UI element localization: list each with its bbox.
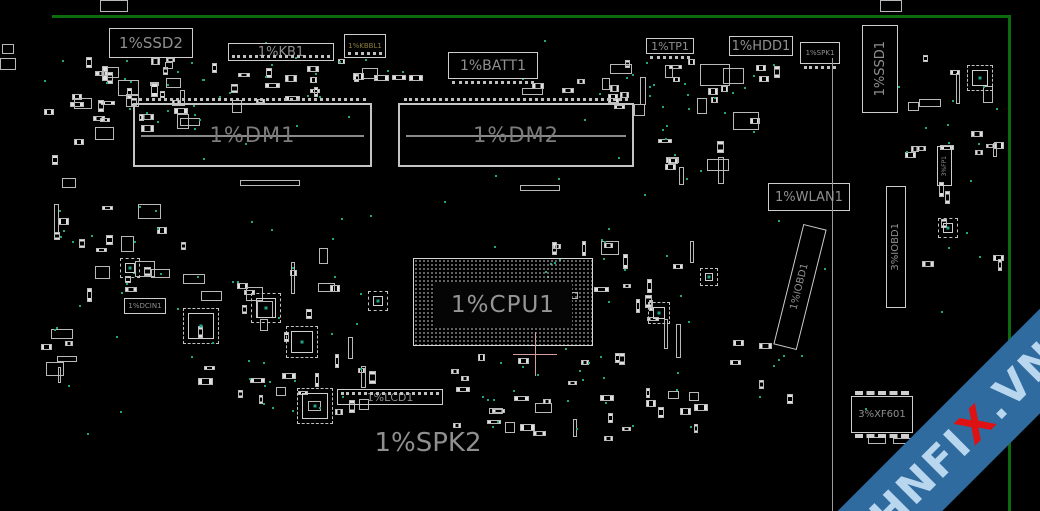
test-point-dot	[537, 374, 539, 376]
part-resistor	[314, 87, 318, 98]
part-resistor	[151, 58, 160, 65]
part-resistor	[461, 376, 469, 381]
part-resistor	[242, 305, 248, 314]
test-point-dot	[124, 78, 126, 80]
test-point-dot	[686, 178, 688, 180]
component-label: 1%DCIN1	[128, 303, 161, 310]
test-point-dot	[801, 355, 803, 357]
test-point-dot	[603, 377, 605, 379]
part-resistor	[335, 409, 342, 415]
test-point-dot	[272, 407, 274, 409]
part-resistor	[520, 424, 535, 431]
part-resistor	[636, 299, 640, 313]
pin-ticks	[855, 391, 909, 395]
part-box	[2, 44, 14, 54]
part-box	[95, 127, 113, 140]
part-resistor	[306, 309, 312, 319]
test-point-dot	[941, 311, 943, 313]
test-point-dot	[783, 355, 785, 357]
part-box	[520, 185, 560, 191]
part-resistor	[733, 340, 743, 346]
test-point-dot	[649, 95, 651, 97]
part-resistor	[310, 77, 317, 82]
part-resistor	[409, 75, 424, 81]
test-point-dot	[264, 385, 266, 387]
part-resistor	[41, 344, 52, 350]
test-point-dot	[665, 138, 667, 140]
component-label: 3%XF601	[858, 410, 906, 420]
part-box	[602, 78, 610, 90]
test-point-dot	[292, 410, 294, 412]
component-label: 1%KBBL1	[348, 43, 382, 50]
test-point-dot	[579, 370, 581, 372]
component-ssd1[interactable]: 1%SSD1	[862, 25, 898, 113]
part-box	[668, 391, 679, 399]
component-cpu[interactable]: 1%CPU1	[413, 258, 593, 346]
part-box	[362, 68, 377, 79]
test-point-dot	[271, 229, 273, 231]
component-tp1[interactable]: 1%TP1	[646, 38, 694, 54]
part-resistor	[290, 270, 297, 276]
pin-row	[452, 81, 534, 84]
test-point-dot	[759, 396, 761, 398]
cursor-crosshair-horizontal	[513, 354, 557, 355]
component-dcin1[interactable]: 1%DCIN1	[124, 298, 166, 314]
part-resistor	[562, 88, 574, 93]
part-resistor	[923, 55, 928, 62]
test-point-dot	[608, 301, 610, 303]
test-point-dot	[970, 180, 972, 182]
part-resistor	[950, 70, 960, 75]
part-resistor	[54, 232, 60, 239]
part-resistor	[694, 404, 709, 411]
test-point-dot	[63, 230, 65, 232]
test-point-dot	[649, 86, 651, 88]
part-resistor	[74, 139, 84, 145]
test-point-dot	[662, 129, 664, 131]
test-point-dot	[608, 228, 610, 230]
part-resistor	[986, 144, 995, 148]
part-resistor	[198, 378, 213, 384]
test-point-dot	[44, 80, 46, 82]
test-point-dot	[292, 267, 294, 269]
part-resistor	[392, 75, 406, 80]
test-point-dot	[56, 327, 58, 329]
test-point-dot	[753, 75, 755, 77]
part-resistor	[533, 431, 546, 436]
part-resistor	[608, 413, 613, 424]
part-box	[74, 98, 92, 108]
part-box	[919, 99, 941, 107]
test-point-dot	[567, 400, 569, 402]
chip	[297, 388, 333, 424]
test-point-dot	[948, 142, 950, 144]
pin-row	[650, 56, 690, 59]
part-bar	[956, 73, 960, 103]
chip	[938, 218, 958, 238]
test-point-dot	[263, 403, 265, 405]
test-point-dot	[624, 269, 626, 271]
part-resistor	[478, 354, 485, 361]
part-box	[868, 437, 886, 444]
part-resistor	[604, 436, 613, 441]
component-label: 1%SSD1	[874, 41, 887, 96]
part-box	[505, 422, 515, 433]
test-point-dot	[646, 62, 648, 64]
part-resistor	[212, 63, 218, 73]
part-resistor	[307, 66, 320, 72]
part-resistor	[282, 373, 296, 379]
test-point-dot	[676, 389, 678, 391]
test-point-dot	[139, 206, 141, 208]
test-point-dot	[191, 356, 193, 358]
test-point-dot	[544, 40, 546, 42]
part-resistor	[658, 407, 664, 418]
part-box	[201, 291, 223, 301]
part-box	[95, 266, 110, 280]
component-xf601[interactable]: 3%XF601	[851, 396, 913, 433]
part-resistor	[647, 279, 652, 293]
part-resistor	[151, 83, 158, 98]
component-batt1[interactable]: 1%BATT1	[448, 52, 538, 79]
chip	[286, 326, 318, 358]
test-point-dot	[744, 87, 746, 89]
test-point-dot	[700, 170, 702, 172]
test-point-dot	[666, 125, 668, 127]
part-resistor	[917, 146, 926, 151]
test-point-dot	[134, 241, 136, 243]
component-wlan1[interactable]: 1%WLAN1	[768, 183, 850, 211]
test-point-dot	[495, 175, 497, 177]
test-point-dot	[360, 293, 362, 295]
part-resistor	[285, 75, 296, 81]
pin-row	[348, 52, 382, 55]
part-resistor	[971, 131, 984, 138]
test-point-dot	[688, 321, 690, 323]
test-point-dot	[773, 365, 775, 367]
test-point-dot	[662, 106, 664, 108]
test-point-dot	[356, 323, 358, 325]
part-resistor	[265, 83, 280, 88]
part-resistor	[759, 76, 769, 82]
test-point-dot	[979, 256, 981, 258]
part-resistor	[231, 84, 237, 93]
part-box	[908, 102, 919, 111]
part-bar	[718, 157, 723, 184]
part-resistor	[44, 109, 54, 115]
test-point-dot	[237, 281, 239, 283]
test-point-dot	[229, 92, 231, 94]
component-label: 1%TP1	[651, 41, 689, 52]
part-resistor	[625, 60, 630, 68]
part-resistor	[646, 388, 651, 397]
test-point-dot	[898, 86, 900, 88]
boardview-canvas[interactable]: 1%SSD21%KB11%KBBL11%BATT11%TP11%HDD11%SP…	[0, 0, 1040, 511]
pin-ticks	[855, 434, 909, 438]
component-ssd2[interactable]: 1%SSD2	[109, 28, 193, 58]
chip	[700, 268, 718, 286]
component-label: 1%DM1	[210, 125, 296, 146]
test-point-dot	[160, 273, 162, 275]
test-point-dot	[978, 143, 980, 145]
chip	[648, 302, 670, 324]
part-resistor	[204, 366, 215, 370]
test-point-dot	[157, 228, 159, 230]
component-label: 1%HDD1	[732, 40, 791, 53]
part-resistor	[582, 241, 587, 255]
part-box	[489, 408, 503, 414]
test-point-dot	[714, 97, 716, 99]
test-point-dot	[248, 360, 250, 362]
part-bar	[348, 337, 353, 359]
part-bar	[640, 77, 646, 105]
test-point-dot	[680, 295, 682, 297]
test-point-dot	[604, 241, 606, 243]
test-point-dot	[773, 64, 775, 66]
test-point-dot	[677, 372, 679, 374]
test-point-dot	[265, 76, 267, 78]
component-label: 1%SPK2	[374, 430, 481, 456]
test-point-dot	[644, 194, 646, 196]
part-resistor	[65, 341, 72, 346]
part-resistor	[787, 394, 793, 405]
test-point-dot	[493, 399, 495, 401]
pin-row	[341, 392, 439, 395]
test-point-dot	[576, 428, 578, 430]
part-resistor	[756, 65, 766, 70]
part-resistor	[315, 373, 319, 387]
test-point-dot	[191, 62, 193, 64]
test-point-dot	[387, 70, 389, 72]
part-resistor	[238, 73, 250, 77]
component-label: 3%FP1	[942, 156, 948, 176]
component-label: 1%SSD2	[119, 36, 183, 51]
part-box	[276, 387, 286, 396]
part-resistor	[610, 85, 619, 91]
part-resistor	[922, 261, 934, 267]
part-resistor	[717, 141, 724, 152]
part-resistor	[622, 427, 630, 431]
component-fp1[interactable]: 3%FP1	[937, 146, 952, 186]
component-dm2[interactable]: 1%DM2	[398, 103, 634, 167]
chip	[368, 291, 388, 311]
component-dm1[interactable]: 1%DM1	[133, 103, 372, 167]
part-resistor	[552, 242, 557, 256]
part-resistor	[665, 164, 677, 170]
part-resistor	[58, 218, 68, 224]
part-resistor	[335, 354, 340, 368]
test-point-dot	[494, 246, 496, 248]
part-box	[240, 180, 300, 186]
test-point-dot	[632, 74, 634, 76]
part-resistor	[514, 396, 529, 401]
part-resistor	[86, 57, 92, 68]
part-box	[689, 392, 699, 401]
test-point-dot	[278, 317, 280, 319]
test-point-dot	[177, 71, 179, 73]
test-point-dot	[778, 220, 780, 222]
test-point-dot	[212, 342, 214, 344]
part-box	[100, 0, 128, 12]
part-resistor	[721, 86, 729, 92]
test-point-dot	[632, 425, 634, 427]
test-point-dot	[251, 221, 253, 223]
test-point-dot	[500, 362, 502, 364]
test-point-dot	[360, 368, 362, 370]
component-hdd1[interactable]: 1%HDD1	[729, 36, 793, 56]
component-kb1[interactable]: 1%KB1	[228, 43, 334, 61]
test-point-dot	[294, 380, 296, 382]
test-point-dot	[121, 292, 123, 294]
part-resistor	[673, 264, 683, 269]
part-resistor	[759, 380, 764, 389]
test-point-dot	[925, 127, 927, 129]
component-iobd1[interactable]: 1%IOBD1	[773, 224, 826, 350]
test-point-dot	[603, 258, 605, 260]
test-point-dot	[203, 79, 205, 81]
component-kbbl1[interactable]: 1%KBBL1	[344, 34, 386, 58]
test-point-dot	[778, 359, 780, 361]
slot-pin-strip	[139, 98, 366, 101]
test-point-dot	[947, 124, 949, 126]
part-box	[634, 104, 645, 117]
test-point-dot	[59, 210, 61, 212]
part-bar	[690, 241, 694, 263]
part-resistor	[680, 408, 692, 415]
test-point-dot	[522, 366, 524, 368]
test-point-dot	[334, 276, 336, 278]
test-point-dot	[753, 131, 755, 133]
test-point-dot	[167, 84, 169, 86]
part-box	[183, 274, 205, 284]
part-box	[700, 64, 730, 86]
test-point-dot	[492, 426, 494, 428]
part-resistor	[125, 287, 137, 292]
test-point-dot	[690, 426, 692, 428]
part-box	[62, 178, 76, 188]
test-point-dot	[197, 276, 199, 278]
part-resistor	[330, 285, 339, 292]
part-resistor	[518, 358, 529, 363]
test-point-dot	[54, 329, 56, 331]
part-resistor	[79, 239, 85, 247]
test-point-dot	[497, 421, 499, 423]
component-label: 1%SPK1	[806, 50, 835, 57]
part-resistor	[568, 381, 577, 385]
part-resistor	[623, 284, 631, 288]
part-box	[697, 98, 707, 114]
chip	[183, 308, 219, 344]
test-point-dot	[155, 210, 157, 212]
component-label: 1%BATT1	[460, 59, 526, 73]
test-point-dot	[513, 390, 515, 392]
part-resistor	[98, 100, 104, 112]
part-resistor	[905, 152, 916, 158]
part-resistor	[998, 259, 1002, 271]
test-point-dot	[482, 396, 484, 398]
test-point-dot	[339, 61, 341, 63]
test-point-dot	[370, 215, 372, 217]
part-resistor	[623, 254, 628, 269]
test-point-dot	[599, 93, 601, 95]
test-point-dot	[582, 379, 584, 381]
part-box	[165, 62, 174, 69]
part-box	[535, 403, 552, 413]
test-point-dot	[605, 402, 607, 404]
part-resistor	[238, 390, 242, 398]
test-point-dot	[177, 308, 179, 310]
part-resistor	[577, 79, 586, 84]
test-point-dot	[724, 112, 726, 114]
part-resistor	[615, 353, 620, 363]
test-point-dot	[91, 235, 93, 237]
part-resistor	[106, 235, 112, 246]
part-box	[522, 88, 543, 95]
test-point-dot	[126, 283, 128, 285]
part-resistor	[594, 287, 609, 292]
test-point-dot	[626, 77, 628, 79]
part-resistor	[181, 242, 186, 250]
part-resistor	[87, 288, 92, 301]
part-resistor	[975, 150, 982, 155]
test-point-dot	[341, 218, 343, 220]
component-label: 1%CPU1	[451, 294, 555, 317]
part-resistor	[730, 360, 740, 365]
part-box	[121, 236, 134, 252]
test-point-dot	[60, 236, 62, 238]
test-point-dot	[444, 201, 446, 203]
component-lcd1[interactable]: 1%LCD1	[337, 389, 443, 405]
test-point-dot	[402, 71, 404, 73]
part-resistor	[945, 191, 950, 203]
part-box	[880, 0, 902, 12]
test-point-dot	[948, 247, 950, 249]
test-point-dot	[966, 232, 968, 234]
part-resistor	[102, 66, 108, 80]
part-resistor	[708, 88, 718, 94]
part-resistor	[694, 424, 699, 433]
component-label: 1%IOBD1	[789, 263, 810, 312]
part-resistor	[96, 248, 107, 252]
component-spk1[interactable]: 1%SPK1	[800, 42, 840, 64]
test-point-dot	[687, 94, 689, 96]
component-spk2[interactable]: 1%SPK2	[378, 428, 478, 458]
part-resistor	[353, 73, 364, 80]
test-point-dot	[130, 81, 132, 83]
part-bar	[54, 204, 59, 233]
board-outline-top	[52, 15, 1011, 18]
test-point-dot	[653, 84, 655, 86]
component-iobd3[interactable]: 3%IOBD1	[886, 186, 906, 308]
part-resistor	[451, 369, 459, 374]
test-point-dot	[79, 305, 81, 307]
test-point-dot	[263, 362, 265, 364]
part-resistor	[646, 400, 656, 407]
board-split-line	[832, 58, 833, 511]
part-box	[319, 248, 328, 265]
test-point-dot	[269, 381, 271, 383]
component-label: 1%DM2	[473, 125, 559, 146]
part-resistor	[250, 378, 265, 383]
test-point-dot	[996, 108, 998, 110]
test-point-dot	[674, 154, 676, 156]
test-point-dot	[106, 82, 108, 84]
test-point-dot	[68, 385, 70, 387]
test-point-dot	[565, 348, 567, 350]
test-point-dot	[952, 100, 954, 102]
test-point-dot	[126, 60, 128, 62]
part-resistor	[673, 77, 680, 83]
